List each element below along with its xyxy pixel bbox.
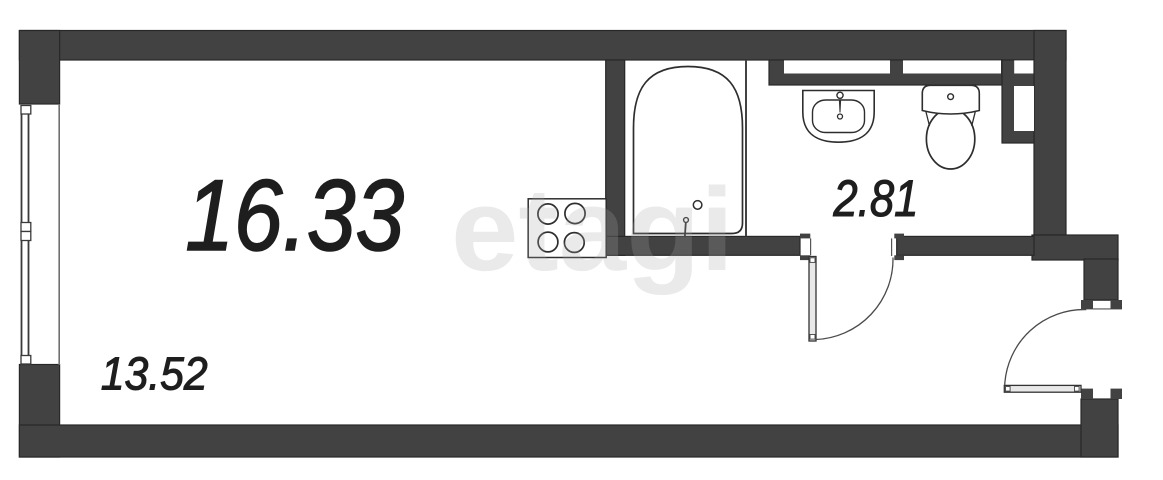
svg-text:16.33: 16.33	[185, 160, 404, 272]
svg-text:13.52: 13.52	[101, 347, 208, 399]
svg-text:2.81: 2.81	[833, 169, 919, 227]
svg-text:etagi: etagi	[451, 164, 734, 296]
